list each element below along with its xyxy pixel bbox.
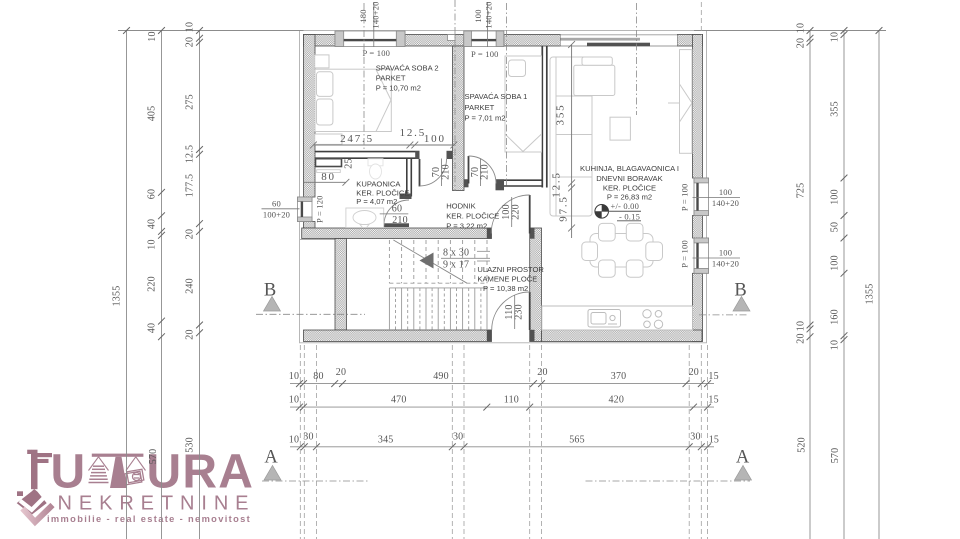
svg-text:B: B (734, 281, 746, 301)
svg-text:50: 50 (830, 222, 841, 232)
svg-text:140+20: 140+20 (370, 1, 380, 28)
svg-text:100: 100 (830, 189, 841, 205)
svg-text:KAMENE PLOČE: KAMENE PLOČE (477, 275, 537, 284)
svg-text:15: 15 (708, 395, 718, 406)
svg-text:9 x 17: 9 x 17 (443, 260, 469, 271)
svg-text:60: 60 (147, 189, 158, 199)
svg-text:30: 30 (690, 431, 700, 442)
svg-text:100: 100 (719, 248, 732, 258)
svg-text:355: 355 (555, 104, 567, 126)
svg-text:177.5: 177.5 (185, 174, 196, 198)
svg-text:100+20: 100+20 (263, 210, 290, 220)
svg-text:405: 405 (147, 106, 158, 122)
svg-text:A: A (264, 448, 278, 468)
svg-text:P = 100: P = 100 (363, 48, 391, 58)
svg-text:B: B (264, 281, 276, 301)
svg-text:15: 15 (709, 434, 719, 445)
svg-text:355: 355 (830, 101, 841, 117)
svg-text:10: 10 (289, 395, 299, 406)
svg-text:80: 80 (313, 371, 323, 382)
svg-text:KUPAONICA: KUPAONICA (356, 180, 401, 189)
svg-text:10: 10 (796, 321, 807, 331)
svg-text:10: 10 (830, 32, 841, 42)
svg-text:490: 490 (433, 371, 449, 382)
svg-text:210: 210 (441, 164, 452, 180)
svg-text:NEKRETNINE: NEKRETNINE (58, 493, 256, 515)
svg-text:immobilie - real estate - nemo: immobilie - real estate - nemovitost (47, 514, 251, 524)
svg-text:25: 25 (344, 158, 355, 168)
svg-text:PARKET: PARKET (465, 103, 495, 112)
svg-text:10: 10 (830, 340, 841, 350)
svg-text:10: 10 (185, 22, 196, 32)
svg-text:P = 100: P = 100 (679, 240, 689, 268)
svg-text:30: 30 (453, 431, 463, 442)
svg-text:10: 10 (147, 31, 158, 41)
svg-text:20: 20 (185, 37, 196, 47)
svg-text:P = 10,70 m2: P = 10,70 m2 (376, 84, 421, 93)
svg-text:KER. PLOČICE: KER. PLOČICE (356, 188, 409, 197)
svg-text:20: 20 (689, 367, 699, 378)
svg-text:30: 30 (303, 431, 313, 442)
svg-text:100: 100 (830, 255, 841, 271)
svg-text:275: 275 (185, 94, 196, 110)
svg-text:10: 10 (147, 239, 158, 249)
svg-text:240: 240 (185, 278, 196, 294)
svg-text:- 0.15: - 0.15 (619, 211, 640, 221)
svg-text:60: 60 (392, 203, 402, 214)
svg-text:A: A (736, 448, 750, 468)
svg-text:20: 20 (796, 333, 807, 343)
svg-text:P = 120: P = 120 (315, 195, 325, 223)
svg-text:20: 20 (796, 38, 807, 48)
svg-text:60: 60 (272, 198, 281, 208)
svg-text:100: 100 (719, 187, 732, 197)
svg-text:20: 20 (185, 229, 196, 239)
svg-text:KER. PLOČICE: KER. PLOČICE (446, 212, 499, 221)
svg-text:160: 160 (830, 309, 841, 325)
svg-text:1355: 1355 (865, 284, 876, 305)
svg-text:220: 220 (511, 204, 522, 220)
svg-text:520: 520 (797, 437, 808, 453)
svg-text:140+20: 140+20 (484, 1, 494, 28)
svg-text:P = 100: P = 100 (679, 183, 689, 211)
svg-text:20: 20 (537, 367, 547, 378)
svg-text:15: 15 (708, 371, 718, 382)
svg-text:40: 40 (147, 219, 158, 229)
svg-text:97.5: 97.5 (558, 195, 570, 221)
svg-text:20: 20 (185, 329, 196, 339)
svg-text:KUHINJA, BLAGAVAONICA I: KUHINJA, BLAGAVAONICA I (580, 164, 679, 173)
svg-text:+/- 0.00: +/- 0.00 (611, 201, 640, 211)
svg-text:P = 7,01 m2: P = 7,01 m2 (465, 114, 506, 123)
svg-text:570: 570 (830, 448, 841, 464)
svg-text:420: 420 (608, 395, 624, 406)
svg-text:P = 100: P = 100 (471, 49, 499, 59)
svg-text:1355: 1355 (112, 286, 123, 307)
svg-text:10: 10 (796, 23, 807, 33)
svg-text:140+20: 140+20 (712, 259, 739, 269)
svg-text:ULAZNI PROSTOR: ULAZNI PROSTOR (477, 265, 544, 274)
svg-text:HODNIK: HODNIK (446, 202, 476, 211)
svg-text:110: 110 (504, 395, 519, 406)
svg-text:210: 210 (392, 215, 408, 226)
svg-text:URA: URA (147, 446, 255, 499)
svg-text:80: 80 (321, 171, 336, 183)
svg-text:P = 10,38 m2: P = 10,38 m2 (483, 284, 528, 293)
svg-text:230: 230 (514, 304, 525, 320)
svg-text:100: 100 (473, 9, 483, 22)
svg-text:40: 40 (147, 323, 158, 333)
svg-text:530: 530 (185, 437, 196, 453)
svg-text:247.5: 247.5 (340, 133, 374, 145)
svg-text:U: U (51, 446, 86, 499)
svg-text:20: 20 (336, 367, 346, 378)
svg-text:KER. PLOČICE: KER. PLOČICE (603, 184, 656, 193)
svg-text:10: 10 (289, 371, 299, 382)
svg-text:12.5: 12.5 (551, 171, 563, 197)
svg-text:725: 725 (796, 183, 807, 199)
svg-text:210: 210 (479, 164, 490, 180)
svg-text:470: 470 (391, 395, 407, 406)
svg-text:P = 3,22 m2: P = 3,22 m2 (446, 221, 487, 230)
svg-text:PARKET: PARKET (376, 74, 406, 83)
svg-text:140+20: 140+20 (712, 198, 739, 208)
svg-text:345: 345 (378, 434, 394, 445)
svg-text:8 x 30: 8 x 30 (443, 248, 469, 259)
svg-text:100: 100 (424, 133, 446, 145)
svg-text:10: 10 (289, 434, 299, 445)
svg-text:370: 370 (611, 371, 627, 382)
svg-text:180: 180 (358, 9, 368, 22)
svg-text:12.5: 12.5 (400, 127, 426, 139)
svg-text:SPAVAĆA SOBA 1: SPAVAĆA SOBA 1 (465, 92, 528, 101)
svg-text:220: 220 (147, 276, 158, 292)
svg-text:570: 570 (148, 449, 159, 465)
svg-text:SPAVAĆA SOBA 2: SPAVAĆA SOBA 2 (376, 63, 439, 72)
svg-text:DNEVNI BORAVAK: DNEVNI BORAVAK (596, 174, 662, 183)
svg-text:12.5: 12.5 (185, 145, 196, 163)
svg-text:565: 565 (569, 434, 585, 445)
